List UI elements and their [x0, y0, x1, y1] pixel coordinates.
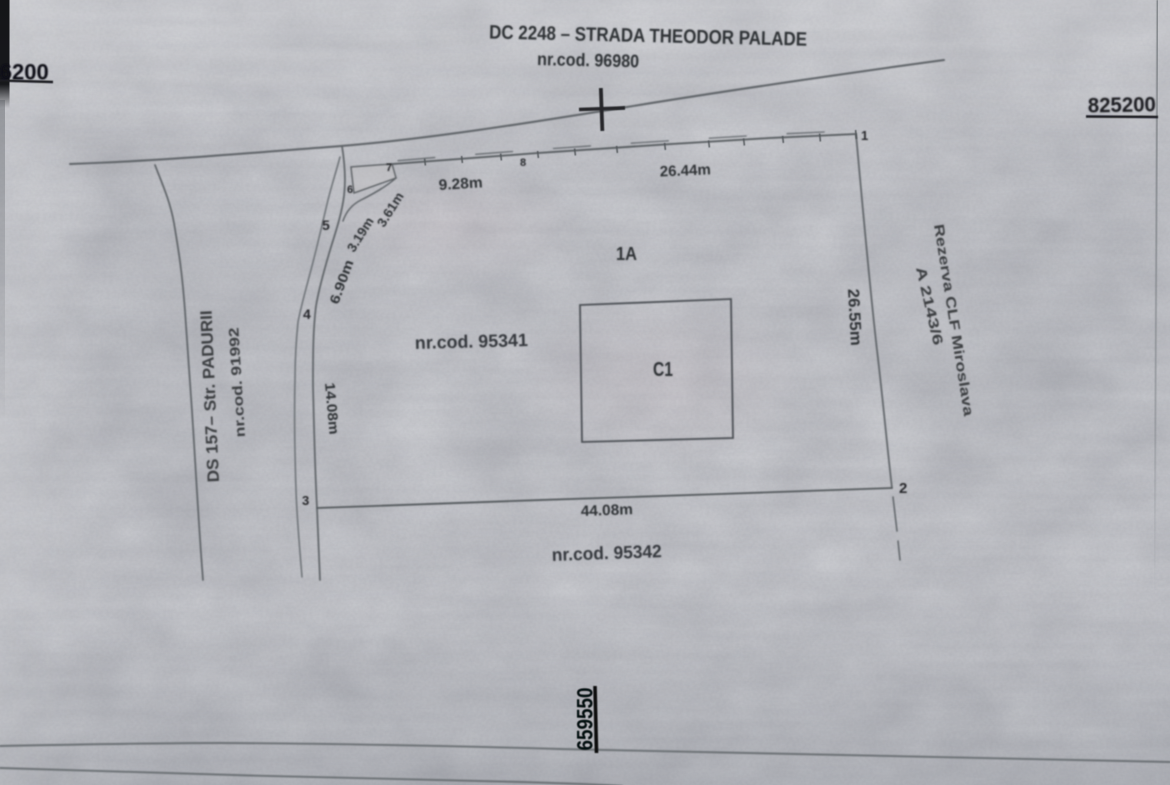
svg-text:7: 7 — [386, 162, 392, 174]
svg-text:8: 8 — [520, 157, 526, 169]
svg-text:26.55m: 26.55m — [844, 288, 864, 346]
svg-text:nr.cod. 95341: nr.cod. 95341 — [415, 330, 528, 353]
svg-text:5: 5 — [322, 217, 330, 233]
svg-text:44.08m: 44.08m — [581, 501, 634, 520]
svg-text:3: 3 — [302, 493, 309, 508]
svg-text:9.28m: 9.28m — [438, 174, 483, 194]
svg-text:C1: C1 — [653, 359, 673, 381]
svg-text:4: 4 — [303, 306, 311, 322]
svg-text:825200: 825200 — [1088, 93, 1156, 117]
svg-text:1: 1 — [861, 128, 868, 143]
svg-text:nr.cod. 96980: nr.cod. 96980 — [537, 49, 639, 71]
svg-text:1A: 1A — [616, 244, 637, 264]
svg-text:6: 6 — [347, 184, 353, 196]
svg-text:2: 2 — [899, 480, 907, 497]
svg-text:nr.cod. 95342: nr.cod. 95342 — [551, 541, 662, 565]
svg-text:26.44m: 26.44m — [659, 161, 711, 180]
